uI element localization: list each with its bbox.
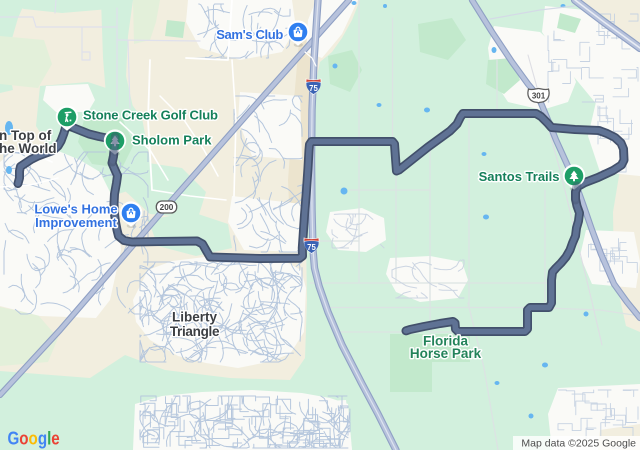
svg-text:he World: he World — [0, 141, 57, 156]
svg-text:Improvement: Improvement — [35, 215, 117, 230]
svg-text:Liberty: Liberty — [172, 310, 218, 325]
svg-text:Google: Google — [8, 428, 60, 449]
svg-text:75: 75 — [307, 243, 316, 252]
svg-text:Stone Creek Golf Club: Stone Creek Golf Club — [83, 108, 218, 123]
svg-text:Horse Park: Horse Park — [410, 346, 482, 361]
svg-text:Sam's Club: Sam's Club — [216, 27, 283, 42]
svg-text:301: 301 — [532, 92, 546, 101]
svg-text:75: 75 — [309, 84, 318, 93]
svg-text:Triangle: Triangle — [170, 324, 220, 339]
svg-text:200: 200 — [160, 203, 174, 212]
svg-text:Sholom Park: Sholom Park — [132, 133, 212, 148]
svg-text:Map data ©2025 Google: Map data ©2025 Google — [521, 438, 636, 450]
svg-text:Santos Trails: Santos Trails — [479, 169, 560, 184]
